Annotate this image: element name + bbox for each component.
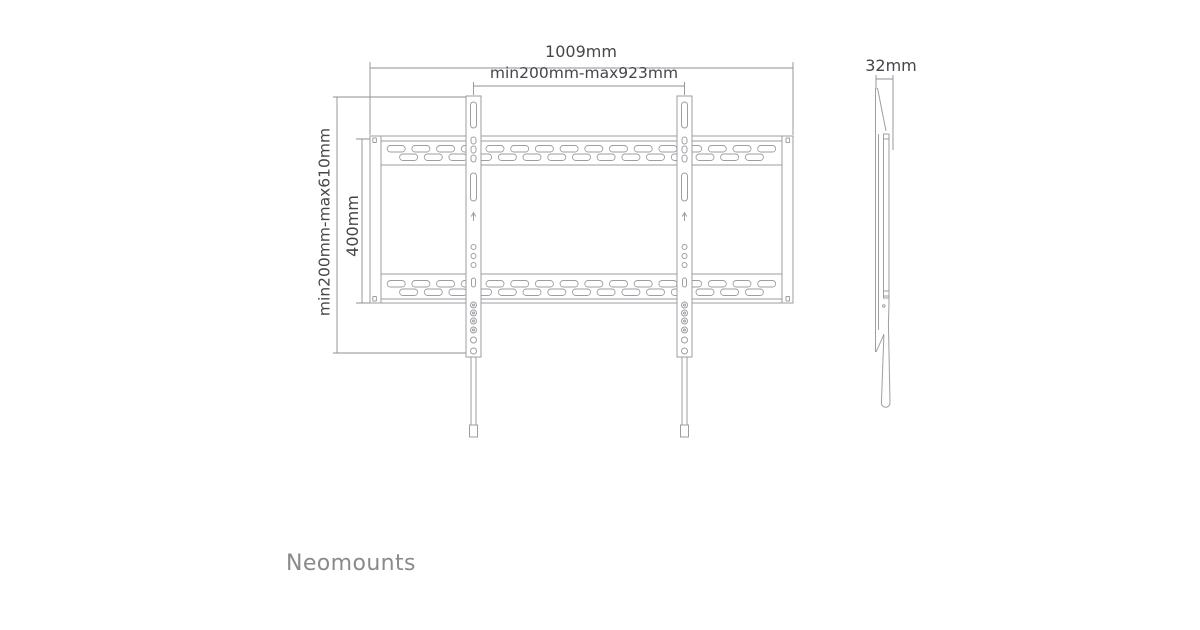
top-rail-slots — [387, 146, 776, 161]
side-view-drawing — [876, 88, 891, 407]
side-bottom-taper — [876, 334, 884, 352]
side-top-hook-slant — [878, 88, 887, 131]
diagram-canvas: 1009mm min200mm-max923mm min200mm-max610… — [0, 0, 1200, 630]
plate-outline — [370, 136, 793, 303]
side-pull-strap-loop — [881, 298, 890, 407]
bottom-rail-slots — [387, 281, 776, 296]
side-hook-bottom — [884, 291, 890, 296]
dimension-lines — [333, 62, 893, 353]
wall-mount-technical-drawing — [0, 0, 1200, 630]
side-hook-top — [884, 134, 890, 139]
dim-label-mount-width-range: min200mm-max923mm — [481, 65, 687, 82]
dim-label-depth: 32mm — [861, 57, 921, 75]
corner-screw — [373, 138, 377, 143]
dim-mount-width-line — [474, 82, 685, 95]
wall-plate-front-view — [370, 136, 793, 303]
tv-bracket-arm-left — [466, 96, 481, 437]
corner-screw — [786, 297, 790, 302]
side-wall-plate-bar — [884, 134, 890, 298]
dim-label-plate-height: 400mm — [344, 195, 362, 257]
tv-bracket-arm-right — [677, 96, 692, 437]
corner-screw — [786, 138, 790, 143]
dim-label-mount-height-range: min200mm-max610mm — [316, 128, 333, 316]
top-rail-lines — [381, 141, 782, 165]
brand-wordmark: Neomounts — [286, 551, 416, 576]
corner-screw — [373, 297, 377, 302]
dim-label-total-width: 1009mm — [520, 43, 642, 61]
end-bracket-edges — [381, 136, 782, 303]
side-screw-dot — [883, 305, 885, 307]
